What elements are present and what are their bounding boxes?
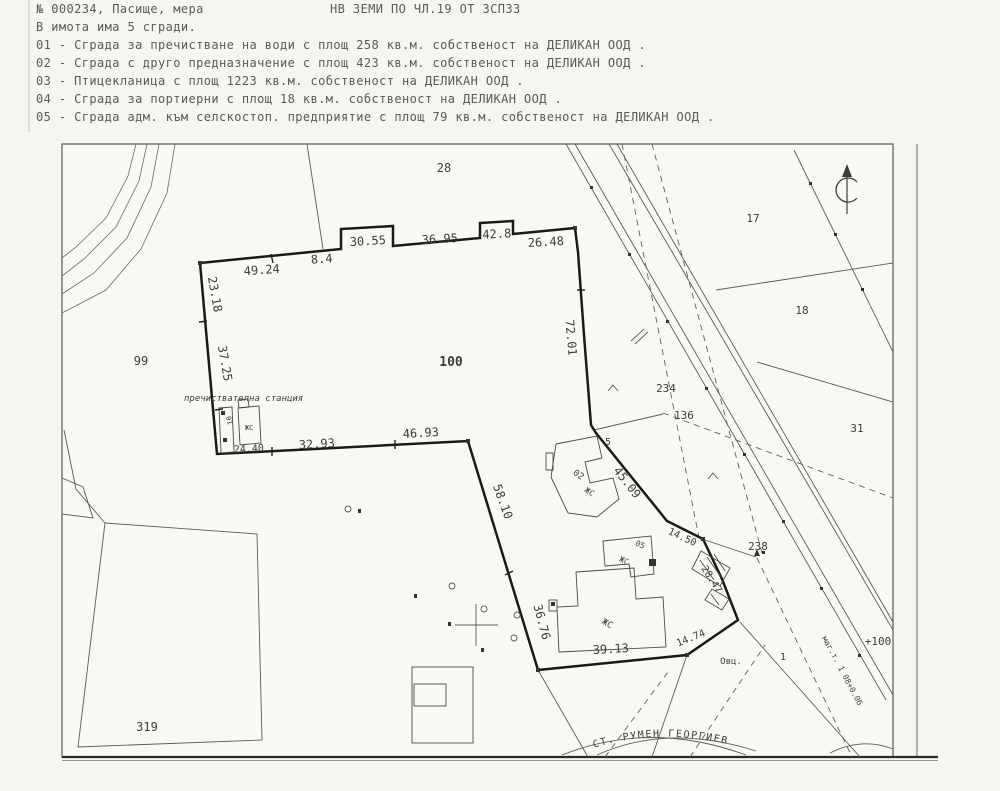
measure-label: 26.48 (527, 234, 564, 250)
station-marker-label: +100 (865, 635, 892, 648)
vertex-label-5: 5 (605, 437, 611, 448)
building-01-type: ЖС (245, 424, 253, 432)
building-line-4: 04 - Сграда за портиерни с площ 18 кв.м.… (36, 92, 562, 106)
buildings-intro: В имота има 5 сгради. (36, 20, 196, 34)
parcel-label-1: 1 (780, 652, 786, 663)
parcel-label-319: 319 (136, 720, 158, 734)
measure-label: 24.40 (234, 443, 265, 456)
doc-type: НВ ЗЕМИ ПО ЧЛ.19 ОТ ЗСПЗЗ (330, 2, 521, 16)
measure-label: 30.55 (349, 233, 386, 249)
station-annotation: пречиствателна станция (184, 394, 303, 404)
parcel-label-234: 234 (656, 382, 676, 395)
building-line-2: 02 - Сграда с друго предназначение с пло… (36, 56, 646, 70)
parcel-label-99: 99 (134, 354, 148, 368)
cadastral-sketch: № 000234, Пасище, мера НВ ЗЕМИ ПО ЧЛ.19 … (0, 0, 1000, 791)
measure-label: 49.24 (243, 262, 280, 278)
measure-label: 36.95 (421, 231, 458, 247)
header-block: № 000234, Пасище, мера НВ ЗЕМИ ПО ЧЛ.19 … (29, 0, 715, 132)
measure-label: 46.93 (402, 425, 439, 441)
doc-number: № 000234, Пасище, мера (36, 2, 204, 16)
ovc-label: Овц. (720, 657, 742, 667)
measure-label: 39.13 (592, 641, 629, 657)
building-line-3: 03 - Птицекланица с площ 1223 кв.м. собс… (36, 74, 524, 88)
parcel-label-100: 100 (439, 355, 463, 370)
measure-label: 32.93 (298, 436, 335, 452)
parcel-label-17: 17 (746, 212, 759, 225)
parcel-label-31: 31 (850, 422, 863, 435)
parcel-label-238: 238 (748, 540, 768, 553)
measure-label: 42.8 (482, 226, 512, 241)
parcel-label-18: 18 (795, 304, 808, 317)
building-line-1: 01 - Сграда за пречистване на води с пло… (36, 38, 646, 52)
parcel-label-136: 136 (674, 409, 694, 422)
measure-label: 8.4 (310, 251, 333, 266)
parcel-label-28: 28 (437, 161, 451, 175)
building-line-5: 05 - Сграда адм. към селскостоп. предпри… (36, 110, 715, 124)
